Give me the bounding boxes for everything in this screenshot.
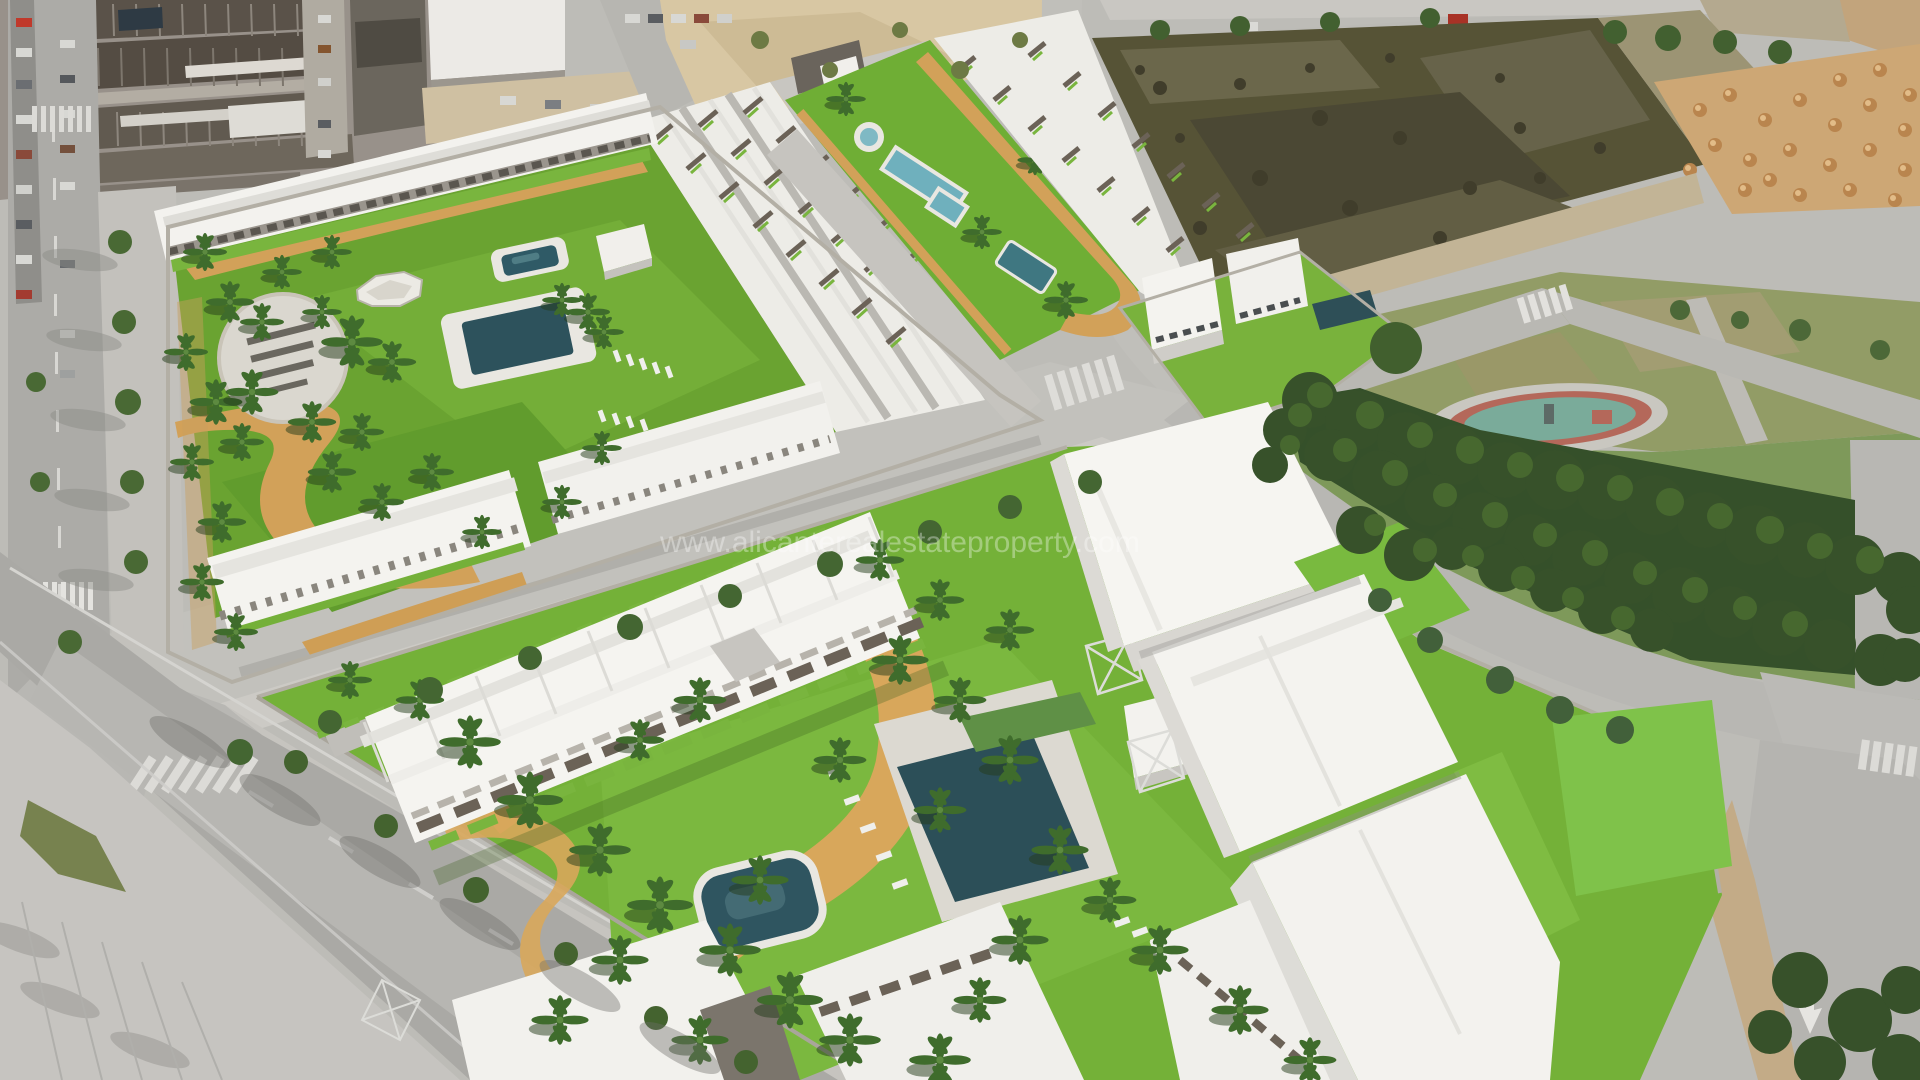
svg-text:www.alicanterealestateproperty: www.alicanterealestateproperty.com: [659, 526, 1140, 559]
